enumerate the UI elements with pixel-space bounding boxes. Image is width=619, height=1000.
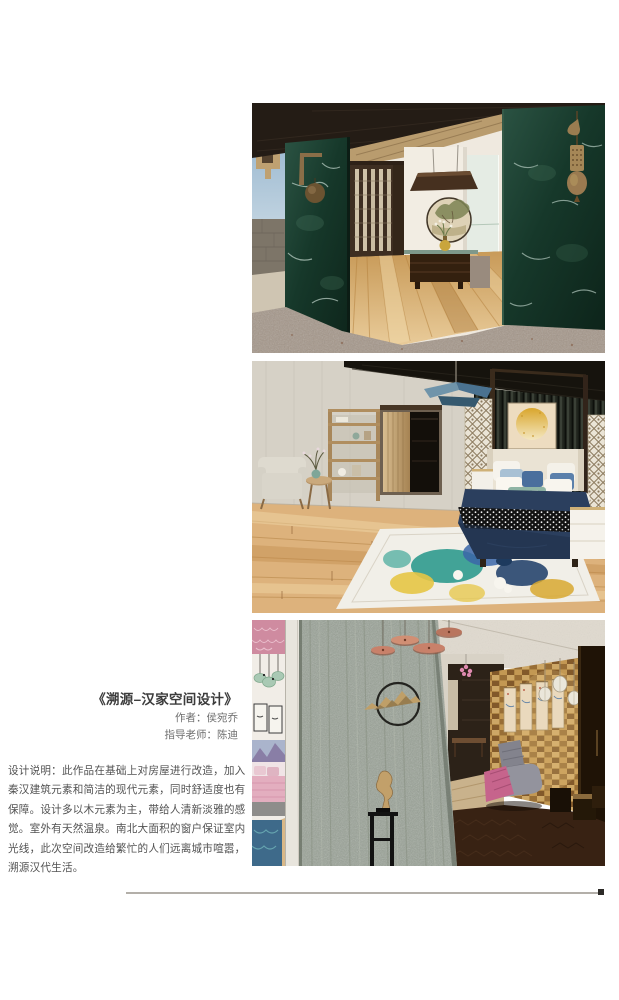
blue-rug	[252, 820, 282, 866]
lattice-screen-right	[588, 415, 605, 509]
description-line: 秦汉建筑元素和简洁的现代元素，同时舒适度也有	[8, 781, 239, 800]
footer-divider-line	[126, 892, 602, 894]
bedroom-glimpse	[252, 620, 285, 866]
description-line: 溯源汉代生活。	[8, 859, 239, 878]
footer-divider-endcap	[598, 889, 604, 895]
outdoor-stone-wall	[252, 219, 286, 275]
bedroom-illustration	[252, 361, 605, 613]
green-marble-wall-right	[502, 105, 605, 331]
description-line: 保障。设计多以木元素为主，带给人清新淡雅的感	[8, 801, 239, 820]
nightstand-right	[570, 507, 605, 559]
slatted-partition	[350, 161, 404, 257]
render-entrance-hall	[252, 103, 605, 353]
door-frame-strip	[285, 620, 299, 866]
page-title: 《溯源–汉家空间设计》	[8, 692, 238, 708]
description-line: 光线，此次空间改造给繁忙的人们远离城市喧嚣，	[8, 840, 239, 859]
description-line: 觉。室外有天然温泉。南北大面积的窗户保证室内	[8, 820, 239, 839]
pink-bed	[252, 762, 285, 816]
design-description: 设计说明：此作品在基础上对房屋进行改造，加入 秦汉建筑元素和简洁的现代元素，同时…	[8, 762, 239, 878]
open-shelf-unit	[328, 409, 380, 501]
stone-feature-wall	[292, 620, 462, 866]
entrance-hall-illustration	[252, 103, 605, 353]
author-line: 作者：侯宛乔	[8, 712, 238, 725]
portfolio-page: 《溯源–汉家空间设计》 作者：侯宛乔 指导老师：陈迪 设计说明：此作品在基础上对…	[0, 0, 619, 1000]
gold-circle-artwork	[508, 403, 556, 449]
render-bedroom	[252, 361, 605, 613]
wardrobe	[380, 405, 442, 495]
advisor-line: 指导老师：陈迪	[8, 729, 238, 742]
description-line: 设计说明：此作品在基础上对房屋进行改造，加入	[8, 762, 239, 781]
round-landscape-painting	[427, 198, 471, 242]
lounge-illustration	[252, 620, 605, 866]
render-lounge	[252, 620, 605, 866]
